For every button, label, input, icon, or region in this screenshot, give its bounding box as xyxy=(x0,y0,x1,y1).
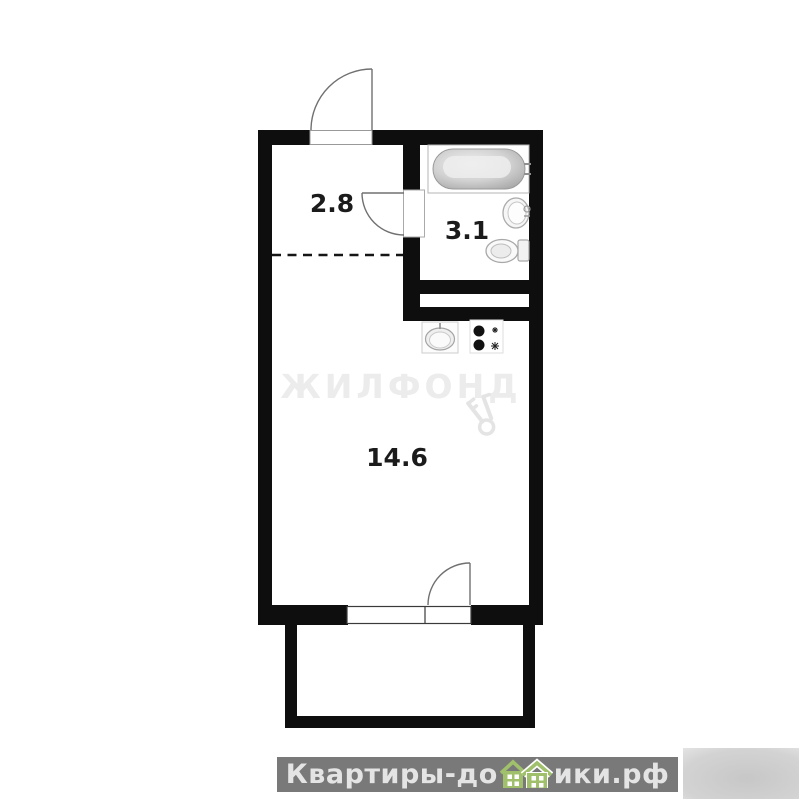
wall-balcony-bottom xyxy=(285,716,535,728)
living-room-area-label: 14.6 xyxy=(366,443,428,472)
bathroom-area-label: 3.1 xyxy=(445,216,489,245)
entry-door-arc-icon xyxy=(311,69,372,130)
floor-plan: ЖИЛФОНД 2.8 3.1 14.6 xyxy=(0,0,799,799)
wall-top-left xyxy=(258,130,312,145)
wall-bottom-left xyxy=(258,605,348,625)
walls xyxy=(258,130,543,728)
house-icon xyxy=(499,758,553,790)
bathtub-icon xyxy=(428,145,531,193)
wall-duct-lower xyxy=(403,307,529,321)
footer-text-right: ики.рф xyxy=(554,759,670,790)
wall-bathroom-bottom xyxy=(420,280,529,294)
sink-icon xyxy=(503,198,530,228)
wall-balcony-left xyxy=(285,625,297,728)
window-balcony-opening xyxy=(347,607,471,624)
stove-icon xyxy=(470,320,503,353)
bathroom-door-arc-icon xyxy=(362,193,404,235)
wall-balcony-right xyxy=(523,625,535,728)
wall-right xyxy=(529,130,543,625)
hallway-area-label: 2.8 xyxy=(310,189,354,218)
footer-watermark-banner: Квартиры-до ики.рф xyxy=(277,757,678,792)
kitchen-sink-icon xyxy=(422,322,458,353)
balcony-door-arc-icon xyxy=(428,563,470,605)
toilet-icon xyxy=(486,240,529,263)
footer-text-left: Квартиры-до xyxy=(286,759,498,790)
corner-gray-block xyxy=(683,748,799,799)
bathroom-door-threshold xyxy=(404,190,425,237)
floor-plan-page: ЖИЛФОНД 2.8 3.1 14.6 Квартиры-до xyxy=(0,0,799,799)
wall-bottom-right xyxy=(471,605,543,625)
wall-left xyxy=(258,130,272,625)
entry-door-threshold xyxy=(310,131,372,145)
window-sill xyxy=(347,607,471,624)
wall-top-right xyxy=(371,130,543,145)
